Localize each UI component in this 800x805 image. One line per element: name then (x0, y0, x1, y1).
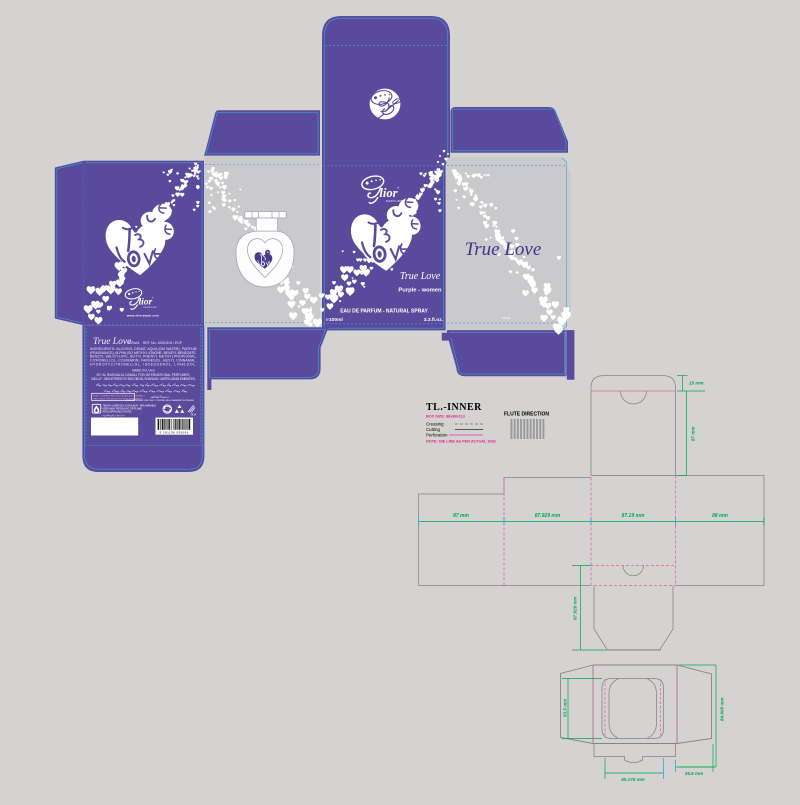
svg-text:IND.U.F - INDUSTRIES P.O BOX 3: IND.U.F - INDUSTRIES P.O BOX 38134, SHAR… (92, 377, 196, 381)
svg-text:87.929 mm: 87.929 mm (535, 513, 561, 519)
svg-text:True Love: True Love (93, 337, 131, 347)
svg-text:Creasing: Creasing (426, 422, 444, 427)
svg-text:6 281108 930066: 6 281108 930066 (160, 431, 189, 435)
svg-text:True Love: True Love (465, 239, 542, 260)
svg-text:HYDROXYCITRONELLAL, ISOEU: HYDROXYCITRONELLAL, ISOEUGENOL, LINALOOL… (90, 362, 197, 366)
svg-text:87 mm: 87 mm (453, 513, 469, 519)
svg-text:87.929 mm: 87.929 mm (573, 597, 578, 621)
svg-text:84.608 mm: 84.608 mm (720, 698, 725, 722)
svg-text:AX.8.M: AX.8.M (502, 316, 511, 320)
svg-text:Purple - women: Purple - women (398, 288, 442, 294)
svg-text:تﺳﻮﻢﺎﻟﺎﻡﻭﺎﻟﻌﻠﻮﻣ: تﺳﻮﻢﺎﻟﺎﻡﻭﺎﻟﻌﻠﻮﻣ (149, 394, 170, 398)
svg-text:EAU DE PARFUM - NATURAL SPRAY: EAU DE PARFUM - NATURAL SPRAY (340, 309, 428, 315)
svg-text:35.5 mm: 35.5 mm (685, 771, 703, 776)
svg-text:Perforation: Perforation (426, 433, 448, 438)
svg-text:87.19 mm: 87.19 mm (622, 513, 645, 519)
svg-text:NOTE: DIE LINE AS PER ACTUAL S: NOTE: DIE LINE AS PER ACTUAL SIZE (426, 440, 496, 444)
svg-text:USE IT UNDER THE DOCTOR ADVICE: USE IT UNDER THE DOCTOR ADVICE SPECIALLY (94, 395, 146, 398)
svg-text:℮100ml: ℮100ml (326, 317, 343, 323)
svg-text:FLUTE DIRECTION: FLUTE DIRECTION (504, 412, 549, 418)
svg-text:www.eliorawati.com: www.eliorawati.com (126, 314, 159, 318)
svg-text:15 mm: 15 mm (689, 381, 704, 386)
svg-text:AVOID SPRAYING IN EYES: AVOID SPRAYING IN EYES (103, 411, 132, 414)
svg-text:60.176 mm: 60.176 mm (621, 777, 645, 782)
svg-text:TL.-INNER: TL.-INNER (426, 402, 482, 413)
svg-text:True Love: True Love (400, 271, 441, 282)
svg-text:3.3.fl.oz.: 3.3.fl.oz. (424, 317, 444, 323)
svg-text:36 M: 36 M (191, 414, 196, 417)
svg-text:ﺣﻴﺮﺎﺟﻮﻟﺎ ﻣﺮﻴﻟﺎﻭﺭﺌﺎﻨﻟﺎﻡﻮﻣﻳ: ﺣﻴﺮﺎﺟﻮﻟﺎ ﻣﺮﻴﻟﺎﻭﺭﺌﺎﻨﻟﺎﻡﻮﻣﻳ (102, 414, 126, 417)
svg-text:BOX SIZE: 88x88x113: BOX SIZE: 88x88x113 (426, 415, 465, 419)
svg-text:Cutting: Cutting (426, 427, 440, 432)
svg-text:53.5 mm: 53.5 mm (563, 699, 568, 717)
svg-text:87 mm: 87 mm (691, 426, 696, 441)
svg-text:FOR EXTERNAL USE ONLY. COURSE: FOR EXTERNAL USE ONLY. COURSE WELL/GARME… (126, 399, 194, 402)
svg-text:KEEP AWAY FROM HEAT OR FLAME: KEEP AWAY FROM HEAT OR FLAME (103, 408, 143, 411)
svg-text:88 mm: 88 mm (712, 513, 728, 519)
svg-text:80%vol. REF. No. 10001104 /: 80%vol. REF. No. 10001104 / EDP (128, 341, 183, 345)
svg-text:TENIR A L'ABRI DE LA CHALEUR -: TENIR A L'ABRI DE LA CHALEUR - INFLAMMAB… (103, 405, 157, 408)
